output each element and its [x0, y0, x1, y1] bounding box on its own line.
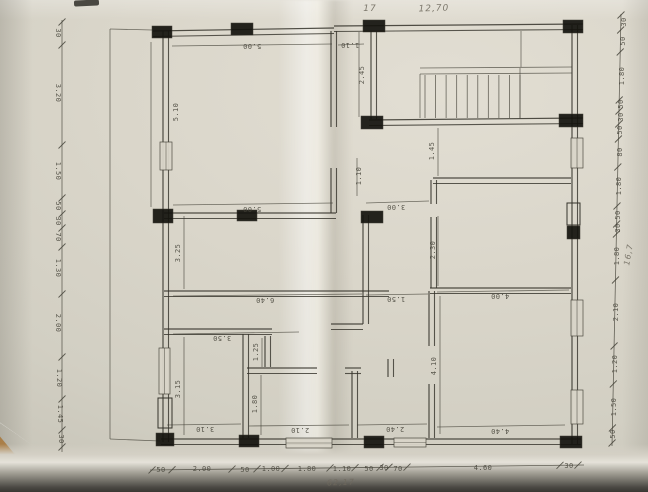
dimension-label: 70	[54, 232, 62, 241]
column-marker	[156, 433, 174, 446]
dimension-label: 5.10	[172, 103, 180, 121]
dimension-label: 3.50	[213, 334, 231, 342]
dimension-label: 3.15	[174, 380, 182, 398]
column-marker	[364, 436, 384, 448]
pencil-note: 17	[363, 4, 376, 14]
dimension-label: 30	[379, 464, 388, 472]
dimension-label: 30	[54, 28, 62, 37]
dimension-line	[420, 73, 572, 74]
dimension-label: 3.25	[174, 244, 182, 262]
column-marker	[361, 211, 383, 223]
pencil-note: 62,17	[327, 478, 355, 488]
dimension-label: 1.80	[613, 247, 621, 265]
dimension-line	[249, 425, 349, 426]
dimension-label: 3.00	[387, 203, 405, 211]
column-marker	[231, 23, 253, 35]
dimension-label: 2.10	[291, 426, 309, 434]
photo-of-floor-plan: 5.001.105.003.006.401.504.003.503.102.10…	[0, 0, 648, 492]
pencil-note: 16,7	[622, 243, 635, 266]
dimension-label: 2.30	[429, 241, 437, 259]
dimension-label: 50	[619, 36, 627, 45]
dimension-label: 30	[57, 434, 65, 443]
wall-pier	[158, 398, 172, 428]
column-marker	[363, 20, 385, 32]
dimension-line	[173, 203, 333, 205]
pencil-note: 12,70	[418, 3, 449, 14]
dimension-label: 6.40	[256, 296, 274, 304]
dimension-label: 30	[620, 17, 628, 26]
column-marker	[560, 436, 582, 448]
dimension-label: 4.60	[474, 464, 492, 472]
dimension-label: 30	[614, 223, 622, 232]
dimension-label: 1.80	[618, 67, 626, 85]
dimension-line	[110, 439, 160, 441]
dimension-label: 50	[156, 466, 165, 474]
floor-plan-svg: 5.001.105.003.006.401.504.003.503.102.10…	[0, 0, 648, 492]
dimension-label: 1.50	[610, 398, 618, 416]
dimension-label: 2.00	[54, 314, 62, 332]
dimension-label: 1.50	[387, 295, 405, 303]
dimension-label: 5.00	[243, 42, 261, 50]
dimension-label: 30	[564, 462, 573, 470]
dimension-label: 80	[616, 147, 624, 156]
dimension-label: 2.40	[386, 425, 404, 433]
dimension-label: 1.10	[341, 41, 359, 49]
dimension-line	[167, 424, 241, 425]
dimension-label: 1.20	[55, 369, 63, 387]
column-marker	[559, 114, 583, 127]
dimension-label: 2.45	[358, 66, 366, 84]
dimension-label: 2.00	[193, 465, 211, 473]
dimension-line	[173, 294, 362, 296]
dimension-label: 50	[616, 125, 624, 134]
dimension-label: 1.30	[54, 259, 62, 277]
dimension-label: 50	[240, 466, 249, 474]
dimension-label: 4.40	[491, 427, 509, 435]
column-marker	[563, 20, 583, 33]
dimension-label: 3.20	[54, 84, 62, 102]
dimension-line	[366, 294, 428, 295]
column-marker	[239, 435, 259, 447]
dimension-line	[437, 290, 569, 292]
dimension-label: 1.20	[611, 355, 619, 373]
dimension-label: 1.80	[298, 465, 316, 473]
dimension-label: 70	[393, 465, 402, 473]
column-marker	[153, 209, 173, 223]
dimension-label: 50	[54, 201, 62, 210]
dimension-label: 1.45	[56, 405, 64, 423]
dimension-label: 50	[617, 99, 625, 108]
dimension-label: 1.80	[251, 395, 259, 413]
dimension-line	[110, 29, 152, 30]
wall-line	[369, 124, 583, 126]
dimension-label: 3.10	[196, 425, 214, 433]
dimension-label: 4.00	[491, 292, 509, 300]
column-marker	[361, 116, 383, 129]
dimension-label: 1.10	[355, 167, 363, 185]
dimension-label: 30	[54, 216, 62, 225]
dimension-label: 1.45	[428, 142, 436, 160]
dimension-line	[173, 332, 299, 334]
dimension-label: 30	[617, 112, 625, 121]
dimension-label: 1.10	[333, 465, 351, 473]
dimension-line	[420, 67, 572, 68]
dimension-label: 1.25	[252, 343, 260, 361]
dimension-label: 50	[609, 429, 617, 438]
dimension-line	[437, 425, 565, 427]
dimension-label: 50	[614, 210, 622, 219]
column-marker	[567, 226, 580, 239]
dimension-line	[366, 201, 429, 203]
dimension-label: 2.10	[612, 303, 620, 321]
dimension-label: 5.00	[243, 205, 261, 213]
dimension-label: 1.00	[262, 465, 280, 473]
dimension-line	[357, 424, 427, 425]
dimension-label: 1.80	[615, 177, 623, 195]
dimension-label: 1.50	[54, 162, 62, 180]
wall-line	[369, 118, 583, 120]
dimension-label: 4.10	[430, 357, 438, 375]
column-marker	[152, 26, 172, 38]
dimension-label: 50	[364, 465, 373, 473]
